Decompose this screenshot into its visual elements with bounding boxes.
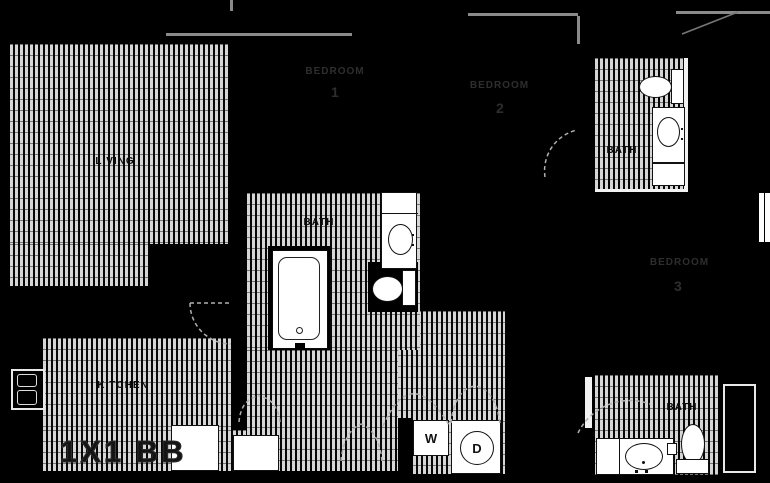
wall-top-jog — [577, 16, 580, 44]
toilet-icon — [681, 424, 705, 464]
bedroom3-number: 3 — [674, 278, 682, 294]
bath2-label: BATH — [598, 145, 646, 156]
dishwasher-icon — [233, 435, 279, 471]
sink-drain — [642, 461, 645, 464]
bath3-left-wall — [585, 377, 592, 428]
sink-icon — [625, 443, 663, 470]
bathtub-faucet — [295, 343, 305, 349]
toilet-icon — [639, 76, 672, 98]
bedroom1-number: 1 — [331, 84, 339, 100]
bedroom1-label: BEDROOM — [300, 66, 370, 77]
bath3-small-box — [667, 443, 677, 455]
sink-icon — [388, 224, 413, 255]
faucet-dot — [412, 234, 414, 236]
bath2-vanity — [652, 107, 685, 163]
dryer-drum-icon: D — [460, 431, 494, 465]
faucet-dot — [635, 470, 638, 473]
dryer-label: D — [472, 441, 481, 456]
floorplan: W D LIVING KITCHEN BATH BATH BATH BEDROO… — [0, 0, 770, 483]
living-floor — [10, 44, 228, 244]
bathtub-drain — [296, 327, 303, 334]
laundry-wall — [398, 418, 413, 474]
dryer-box: D — [451, 420, 501, 474]
living-floor-lower — [10, 244, 148, 286]
bathtub-icon — [272, 250, 328, 349]
toilet-tank — [402, 270, 416, 306]
washer-label: W — [425, 431, 437, 446]
fridge-door-top — [17, 374, 37, 387]
vanity-counter-line — [382, 213, 418, 214]
wall-top-living — [166, 33, 352, 36]
main-bath-vanity — [381, 192, 417, 269]
fridge-icon — [11, 369, 45, 410]
bath2-bottom-wall — [595, 189, 688, 192]
patio-wall-line — [682, 12, 738, 34]
door-swing-icon — [545, 130, 577, 177]
toilet-base — [676, 459, 709, 474]
faucet-dot — [681, 128, 683, 130]
wall-top-stub — [230, 0, 233, 11]
bath2-counter — [652, 163, 685, 186]
bath3-label: BATH — [658, 402, 706, 413]
toilet-icon — [372, 276, 403, 302]
fridge-door-bottom — [17, 390, 37, 405]
kitchen-label: KITCHEN — [92, 380, 154, 391]
bedroom2-number: 2 — [496, 100, 504, 116]
faucet-dot — [412, 244, 414, 246]
bath3-vanity — [596, 438, 674, 475]
toilet-tank — [671, 69, 684, 104]
faucet-dot — [681, 138, 683, 140]
door-jamb-line — [764, 193, 765, 242]
bedroom3-label: BEDROOM — [642, 257, 717, 268]
plan-name: 1X1 BB — [60, 434, 187, 470]
wall-top-right — [676, 11, 770, 14]
closet-outline — [723, 384, 756, 473]
sink-icon — [657, 117, 680, 147]
right-edge-door-jamb — [759, 193, 770, 242]
faucet-dot — [645, 470, 648, 473]
washer-box: W — [413, 420, 449, 456]
living-label: LIVING — [85, 156, 145, 167]
vanity-divider — [619, 439, 620, 476]
wall-top-bedroom2 — [468, 13, 578, 16]
bedroom2-label: BEDROOM — [462, 80, 537, 91]
main-bath-label: BATH — [295, 217, 343, 228]
